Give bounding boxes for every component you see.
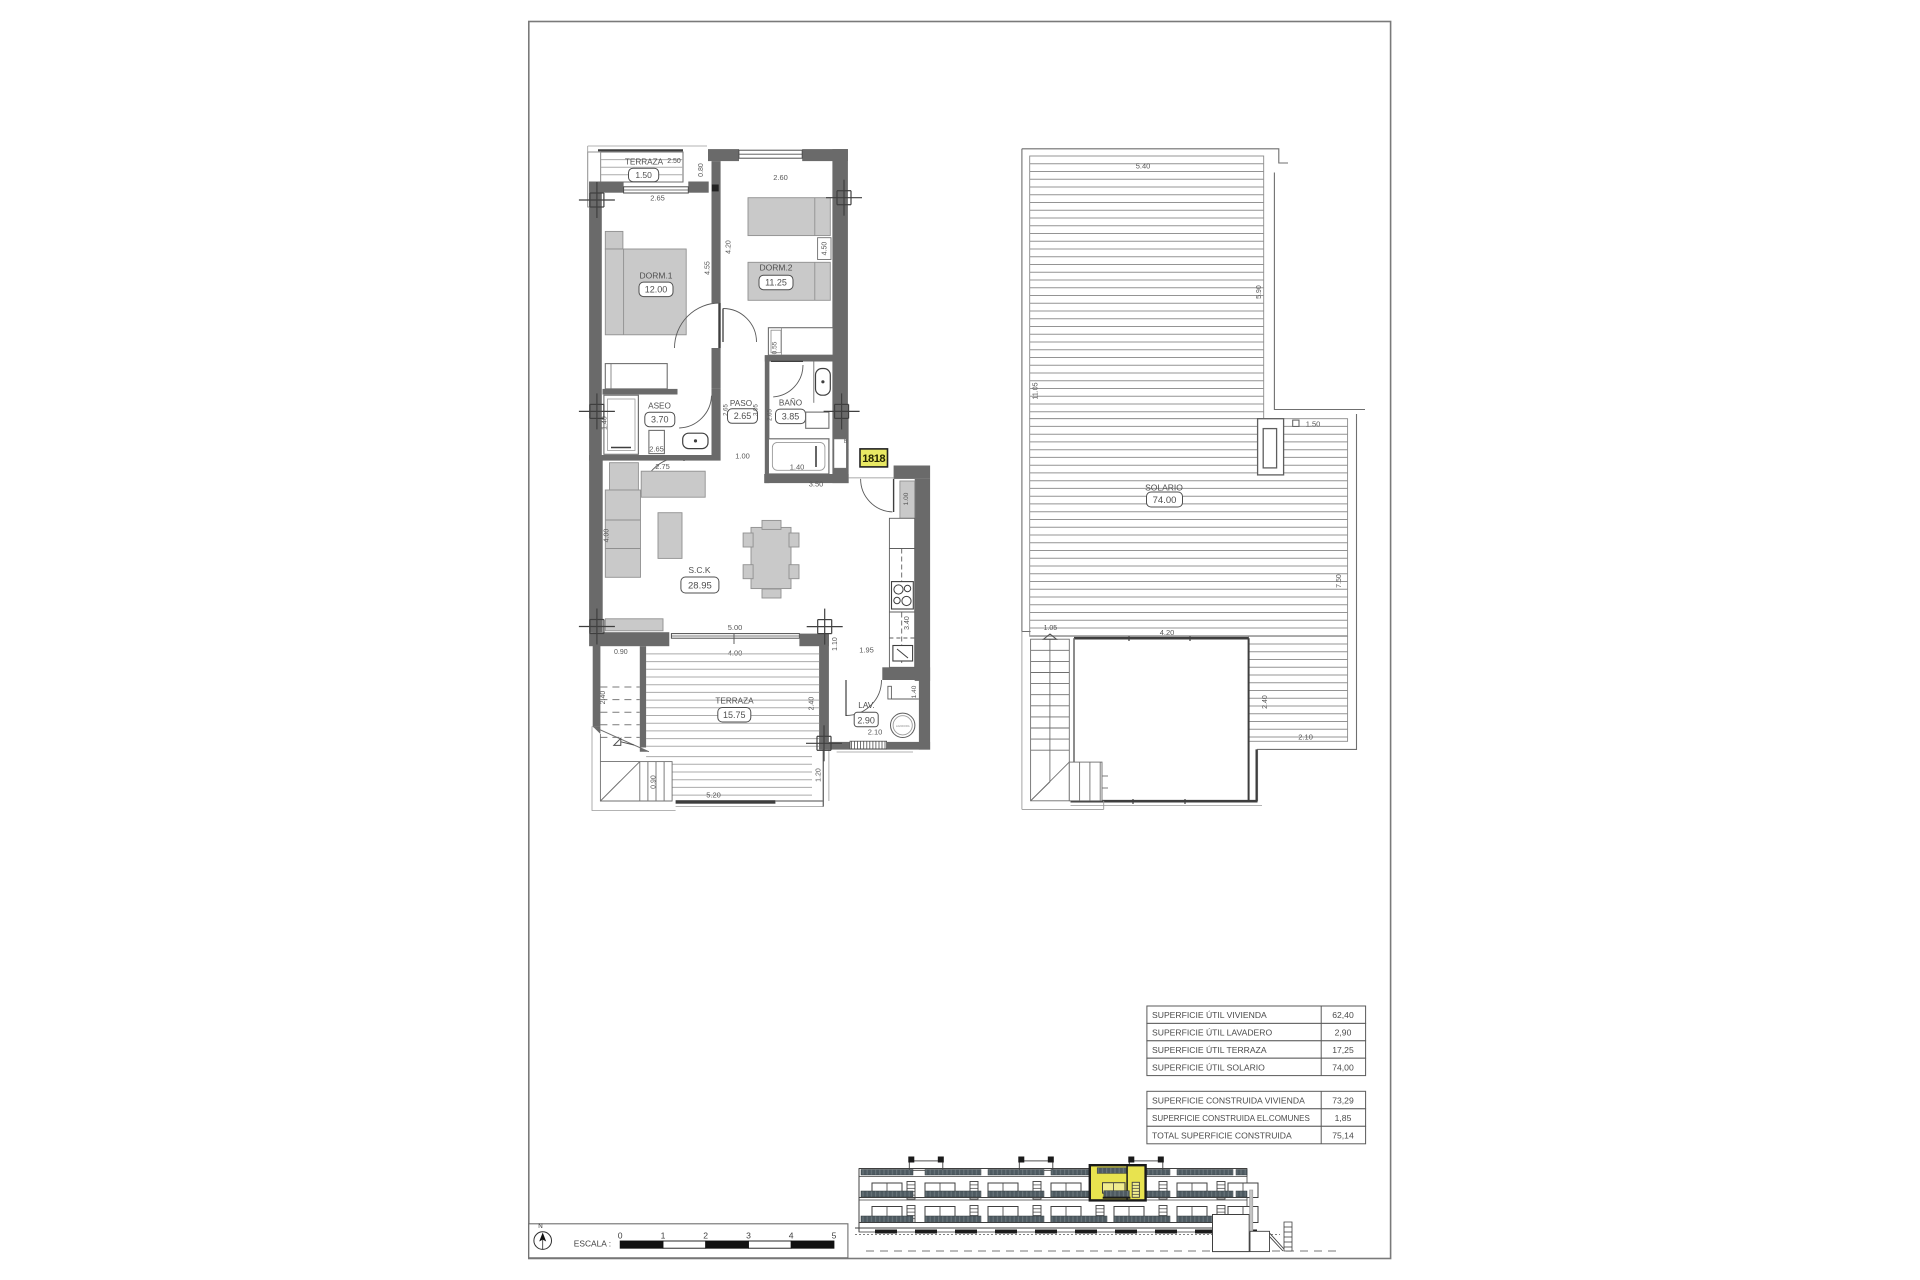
svg-text:4.00: 4.00 [604,529,611,543]
svg-text:1.05: 1.05 [1044,625,1058,632]
svg-text:1,85: 1,85 [1335,1113,1352,1123]
svg-text:1.95: 1.95 [859,646,874,655]
svg-text:3.70: 3.70 [651,415,669,425]
svg-text:0.90: 0.90 [614,649,628,656]
svg-text:S.C.K: S.C.K [688,565,711,575]
svg-text:2.65: 2.65 [649,445,664,454]
svg-text:1.00: 1.00 [903,492,910,505]
svg-text:2.40: 2.40 [600,691,607,705]
svg-text:1.10: 1.10 [832,637,839,651]
svg-text:BAÑO: BAÑO [779,398,802,408]
svg-text:5.40: 5.40 [1136,162,1151,171]
svg-text:1.20: 1.20 [816,768,823,782]
svg-text:SUPERFICIE ÚTIL VIVIENDA: SUPERFICIE ÚTIL VIVIENDA [1152,1010,1267,1020]
svg-text:PASO: PASO [730,399,752,408]
svg-text:5: 5 [832,1231,837,1241]
svg-text:3.85: 3.85 [782,411,800,421]
svg-text:2: 2 [703,1231,708,1241]
svg-text:SUPERFICIE ÚTIL TERRAZA: SUPERFICIE ÚTIL TERRAZA [1152,1045,1267,1055]
svg-text:1.00: 1.00 [735,452,750,461]
svg-text:1.40: 1.40 [911,685,918,698]
svg-text:2.60: 2.60 [773,173,788,182]
svg-text:N: N [538,1223,542,1230]
svg-text:SUPERFICIE CONSTRUIDA VIVIENDA: SUPERFICIE CONSTRUIDA VIVIENDA [1152,1096,1305,1106]
svg-text:4.00: 4.00 [728,649,743,658]
svg-text:2.10: 2.10 [868,728,883,737]
svg-text:1818: 1818 [862,453,885,465]
svg-text:DORM.2: DORM.2 [759,263,792,273]
svg-text:3.50: 3.50 [809,480,824,489]
svg-text:2.65: 2.65 [724,404,730,416]
svg-text:7.50: 7.50 [1336,574,1343,588]
svg-text:15.75: 15.75 [723,710,746,720]
svg-text:0.55: 0.55 [772,341,779,354]
svg-text:1.50: 1.50 [1306,420,1321,429]
svg-text:4.20: 4.20 [726,240,733,254]
svg-text:3.05: 3.05 [754,404,760,416]
svg-text:5.90: 5.90 [1256,285,1263,299]
svg-text:SUPERFICIE ÚTIL SOLARIO: SUPERFICIE ÚTIL SOLARIO [1152,1062,1265,1072]
svg-text:LAV.: LAV. [858,701,874,710]
svg-text:SUPERFICIE ÚTIL LAVADERO: SUPERFICIE ÚTIL LAVADERO [1152,1028,1272,1038]
svg-text:1: 1 [661,1231,666,1241]
svg-text:74,00: 74,00 [1332,1062,1354,1072]
svg-text:2.10: 2.10 [1298,732,1313,741]
svg-text:2.40: 2.40 [1262,695,1269,709]
svg-text:28.95: 28.95 [688,580,712,591]
svg-text:TERRAZA: TERRAZA [625,158,664,167]
svg-text:0: 0 [618,1231,623,1241]
svg-text:TERRAZA: TERRAZA [715,697,754,706]
svg-text:17,25: 17,25 [1332,1045,1354,1055]
svg-text:4.55: 4.55 [705,261,712,275]
svg-text:SOLARIO: SOLARIO [1145,483,1183,493]
svg-text:2.65: 2.65 [768,409,774,421]
svg-text:5.20: 5.20 [706,791,721,800]
svg-text:ESCALA :: ESCALA : [574,1239,611,1249]
svg-text:4: 4 [789,1231,794,1241]
svg-text:73,29: 73,29 [1332,1096,1354,1106]
svg-text:2.65: 2.65 [650,194,665,203]
svg-text:5.00: 5.00 [728,623,743,632]
svg-text:3: 3 [746,1231,751,1241]
svg-text:SUPERFICIE CONSTRUIDA EL.COMUN: SUPERFICIE CONSTRUIDA EL.COMUNES [1152,1114,1310,1123]
svg-text:3.40: 3.40 [904,616,911,630]
svg-text:4.20: 4.20 [1160,628,1175,637]
svg-text:2.75: 2.75 [655,462,670,471]
svg-text:2.50: 2.50 [667,158,681,165]
svg-text:0.90: 0.90 [650,775,657,789]
svg-text:2,90: 2,90 [1335,1028,1352,1038]
svg-text:11.05: 11.05 [1033,382,1040,399]
svg-text:TOTAL SUPERFICIE CONSTRUIDA: TOTAL SUPERFICIE CONSTRUIDA [1152,1131,1292,1141]
svg-text:LAVADORA: LAVADORA [896,724,910,728]
svg-text:0.80: 0.80 [698,163,705,177]
svg-text:75,14: 75,14 [1332,1131,1354,1141]
svg-text:1.40: 1.40 [790,463,805,472]
svg-text:2.65: 2.65 [734,411,752,421]
svg-text:11.25: 11.25 [765,278,787,288]
svg-text:2.90: 2.90 [857,716,875,726]
svg-text:74.00: 74.00 [1153,495,1177,506]
svg-text:2.40: 2.40 [809,697,816,711]
svg-text:ASEO: ASEO [648,402,671,411]
svg-text:DORM.1: DORM.1 [639,271,672,281]
svg-text:62,40: 62,40 [1332,1010,1354,1020]
svg-text:4.50: 4.50 [822,242,829,256]
svg-text:1.50: 1.50 [635,170,652,180]
svg-text:12.00: 12.00 [645,284,668,294]
